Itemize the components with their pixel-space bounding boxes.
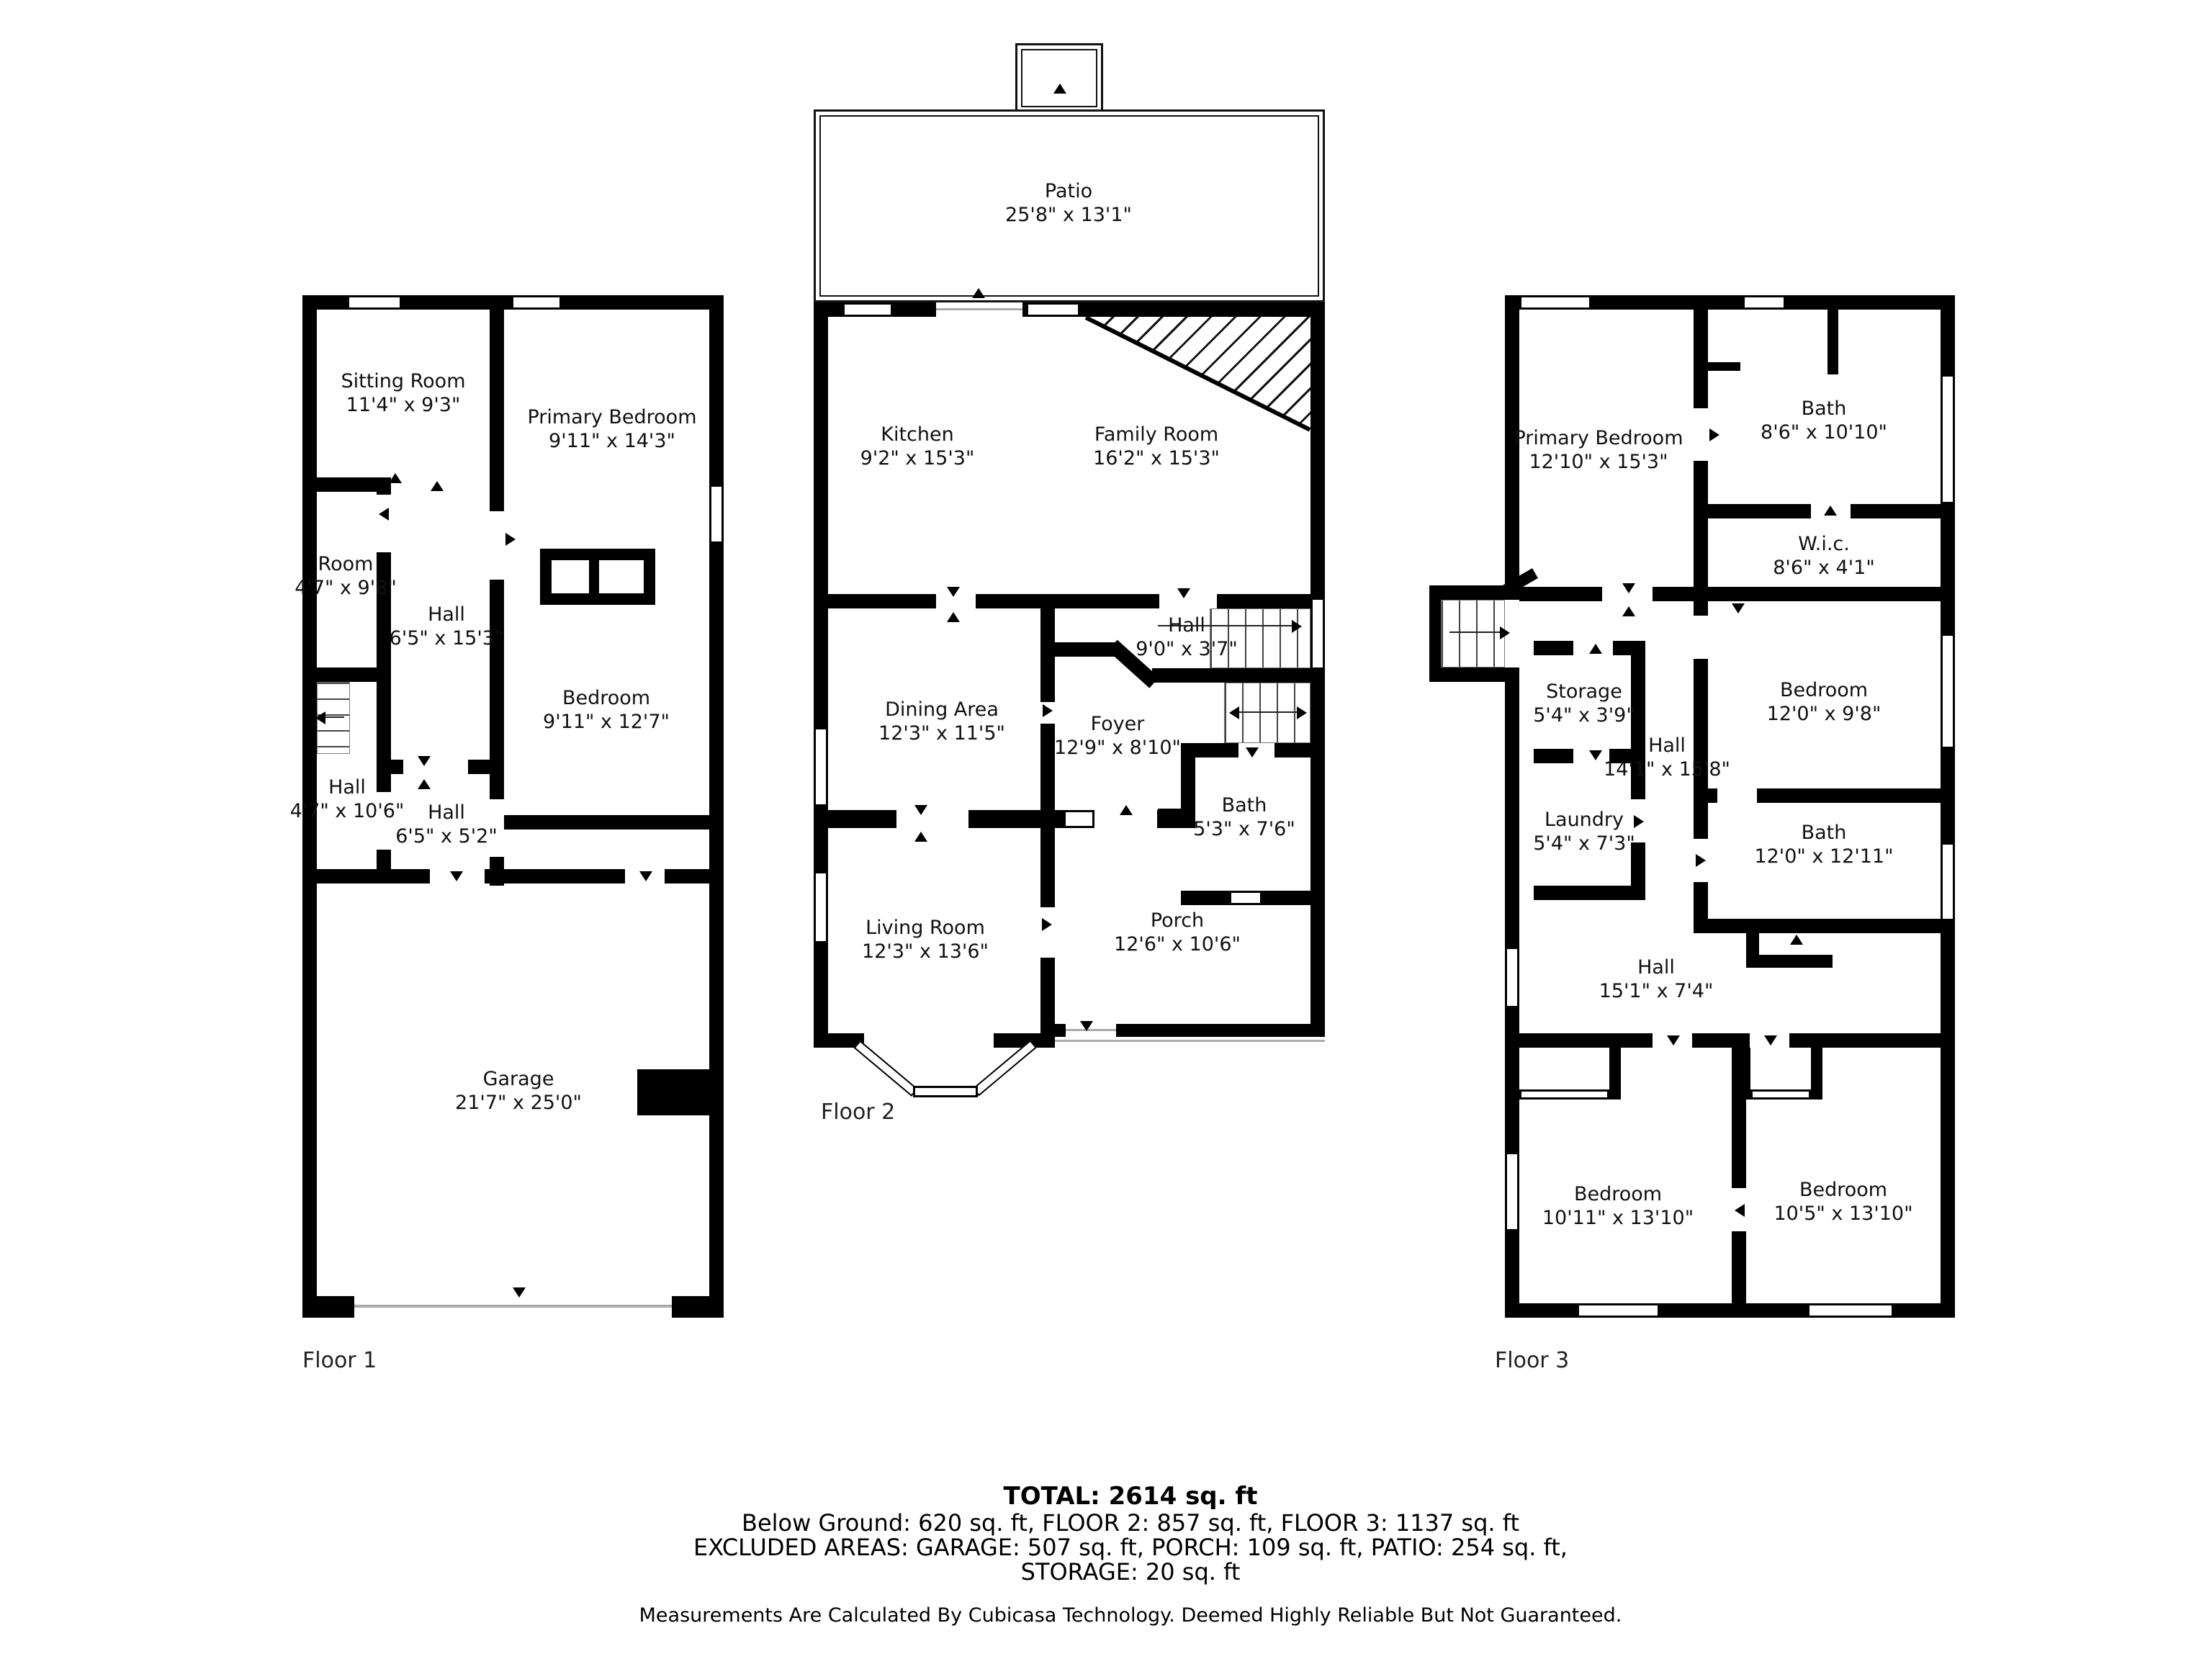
floor-2-plan xyxy=(814,43,1325,1123)
wall xyxy=(1827,310,1838,374)
wall xyxy=(1851,504,1955,518)
door-mark-icon xyxy=(914,832,927,842)
wall xyxy=(1694,601,1708,616)
floorplan-page: Floor 1Sitting Room11'4" x 9'3"Primary B… xyxy=(0,0,2212,1659)
wall xyxy=(1055,642,1116,657)
door-mark-icon xyxy=(513,1287,526,1298)
wall xyxy=(828,594,936,608)
wall xyxy=(814,810,896,828)
wall xyxy=(1708,362,1740,371)
door-mark-icon xyxy=(1709,428,1719,441)
wall xyxy=(1732,1231,1746,1318)
wall xyxy=(1708,504,1811,518)
wall xyxy=(1519,1033,1653,1048)
door-mark-icon xyxy=(1622,606,1635,616)
window xyxy=(842,302,893,317)
wall xyxy=(1519,587,1602,601)
wall xyxy=(490,310,504,511)
wall xyxy=(1310,302,1325,1037)
window xyxy=(1505,947,1519,1008)
door-mark-icon xyxy=(1696,854,1706,867)
stair-direction-line xyxy=(1158,625,1295,626)
wall xyxy=(504,815,709,829)
thin-line xyxy=(354,1305,672,1308)
wall xyxy=(1694,310,1708,408)
door-mark-icon xyxy=(450,871,463,881)
floor-label: Floor 3 xyxy=(1495,1348,1569,1373)
wall xyxy=(317,869,430,884)
wall xyxy=(377,552,391,792)
door-mark-icon xyxy=(1622,583,1635,593)
stair-direction-line xyxy=(1449,631,1503,633)
door-opening xyxy=(1717,788,1757,803)
door-mark-icon xyxy=(1589,644,1602,654)
wall xyxy=(1732,1048,1746,1188)
stairs xyxy=(1210,608,1310,668)
door-mark-icon xyxy=(1634,815,1644,828)
patio-outline xyxy=(814,109,1325,302)
wall xyxy=(709,295,724,1318)
door-mark-icon xyxy=(1790,935,1803,945)
disclaimer-text: Measurements Are Calculated By Cubicasa … xyxy=(24,1604,2212,1627)
window xyxy=(1505,1152,1519,1231)
window xyxy=(814,871,828,943)
wall xyxy=(485,869,625,884)
wall xyxy=(1653,587,1955,601)
door-mark-icon xyxy=(914,805,927,815)
wall xyxy=(1534,749,1573,763)
patio-outline xyxy=(1015,43,1103,113)
wall xyxy=(1157,810,1181,828)
door-mark-icon xyxy=(1292,620,1302,633)
thin-line xyxy=(936,308,1022,310)
door-mark-icon xyxy=(639,871,652,881)
storage-area-text: STORAGE: 20 sq. ft xyxy=(24,1558,2212,1586)
door-mark-icon xyxy=(315,711,325,724)
wall xyxy=(665,869,709,884)
floor-1-plan xyxy=(302,295,724,1318)
wall xyxy=(1631,763,1645,799)
diagonal-wall xyxy=(1107,640,1159,688)
wall xyxy=(672,1296,724,1318)
wall xyxy=(1040,958,1055,1033)
wall xyxy=(1429,585,1441,682)
door-mark-icon xyxy=(1589,750,1602,760)
wall xyxy=(377,760,403,774)
wall xyxy=(1429,667,1519,682)
wall xyxy=(1217,594,1310,608)
door-mark-icon xyxy=(389,473,402,483)
wall xyxy=(644,549,655,605)
window xyxy=(1750,1089,1811,1100)
window xyxy=(1519,295,1591,310)
window xyxy=(347,295,402,310)
wall xyxy=(1609,1048,1621,1100)
door-mark-icon xyxy=(947,612,960,622)
wall xyxy=(1692,1033,1750,1048)
bay-window-pane xyxy=(973,1040,1037,1096)
door-mark-icon xyxy=(1246,747,1259,757)
door-mark-icon xyxy=(1229,706,1239,719)
window xyxy=(1577,1303,1660,1318)
wall xyxy=(302,1296,354,1318)
wall xyxy=(317,477,382,492)
stairs xyxy=(1441,600,1505,667)
door-mark-icon xyxy=(1120,805,1133,815)
wall xyxy=(1534,886,1645,900)
wall xyxy=(968,810,1040,828)
window xyxy=(1743,295,1786,310)
door-mark-icon xyxy=(1500,626,1510,639)
wall xyxy=(1811,1048,1822,1100)
wall xyxy=(1694,919,1955,933)
floor-label: Floor 1 xyxy=(302,1348,377,1373)
window xyxy=(511,295,562,310)
window xyxy=(1941,634,1955,749)
window xyxy=(709,485,724,544)
wall xyxy=(1040,608,1055,702)
window xyxy=(1941,374,1955,504)
door-mark-icon xyxy=(505,533,516,546)
door-mark-icon xyxy=(1667,1035,1680,1046)
wall xyxy=(1694,803,1708,839)
door-mark-icon xyxy=(1824,505,1837,516)
thin-line xyxy=(1055,1040,1325,1042)
door-mark-icon xyxy=(418,756,431,766)
wall xyxy=(1694,461,1708,594)
wall xyxy=(637,1069,709,1115)
window xyxy=(1064,810,1094,828)
window xyxy=(1310,598,1325,670)
bay-window-pane xyxy=(854,1040,918,1097)
door-mark-icon xyxy=(947,587,960,597)
floor-3-plan xyxy=(1429,295,1955,1318)
wall xyxy=(1181,743,1195,809)
wall xyxy=(468,760,504,774)
door-mark-icon xyxy=(1080,1021,1093,1031)
window xyxy=(1229,891,1262,905)
window xyxy=(1941,842,1955,922)
floor-areas-text: Below Ground: 620 sq. ft, FLOOR 2: 857 s… xyxy=(24,1509,2212,1537)
wall xyxy=(1746,955,1833,968)
door-mark-icon xyxy=(1043,704,1053,717)
wall xyxy=(976,594,1055,608)
stair-direction-line xyxy=(1235,711,1300,713)
wall xyxy=(302,295,317,1318)
door-mark-icon xyxy=(431,481,444,491)
wall xyxy=(317,667,377,682)
door-mark-icon xyxy=(1764,1035,1777,1046)
wall xyxy=(1609,749,1645,763)
wall xyxy=(1040,810,1055,907)
wall xyxy=(1055,594,1159,608)
door-mark-icon xyxy=(379,508,389,521)
door-mark-icon xyxy=(1177,588,1190,598)
door-mark-icon xyxy=(418,779,431,789)
door-mark-icon xyxy=(972,288,985,298)
window xyxy=(1807,1303,1894,1318)
window xyxy=(1026,302,1080,317)
door-mark-icon xyxy=(1735,1204,1745,1217)
window xyxy=(1519,1089,1609,1100)
wall xyxy=(589,549,599,605)
wall xyxy=(1694,659,1708,803)
door-mark-icon xyxy=(1053,84,1066,94)
door-mark-icon xyxy=(1297,706,1307,719)
wall xyxy=(1040,724,1055,810)
wall xyxy=(540,549,552,605)
wall xyxy=(1631,641,1645,763)
excluded-areas-text: EXCLUDED AREAS: GARAGE: 507 sq. ft, PORC… xyxy=(24,1534,2212,1561)
wall xyxy=(1505,295,1519,600)
door-mark-icon xyxy=(1732,603,1745,613)
wall xyxy=(1152,668,1310,683)
window xyxy=(814,727,828,806)
door-mark-icon xyxy=(1042,918,1052,931)
wall xyxy=(1534,641,1573,655)
total-area-text: TOTAL: 2614 sq. ft xyxy=(24,1482,2212,1511)
wall xyxy=(1789,1033,1955,1048)
window xyxy=(913,1086,978,1097)
